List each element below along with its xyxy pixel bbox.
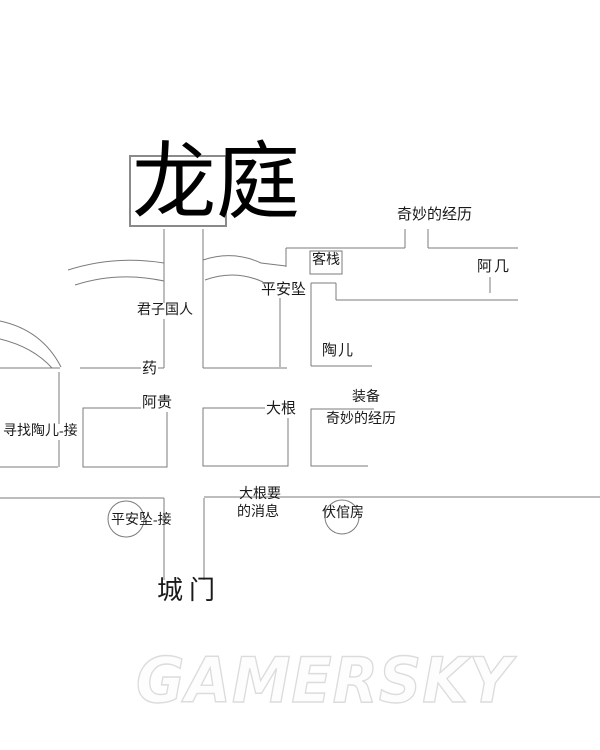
label-experience-top: 奇妙的经历 — [397, 207, 472, 224]
label-dagen-message-line1: 大根要 — [239, 487, 281, 503]
label-junzi-countryman: 君子国人 — [136, 303, 194, 319]
arc-road-left-upper — [68, 260, 164, 270]
map-line-art — [0, 0, 600, 750]
label-medicine: 药 — [141, 361, 158, 378]
label-city-gate: 城门 — [157, 576, 221, 606]
label-agui: 阿贵 — [141, 395, 173, 412]
game-map-longting: GAMERSKY — [0, 0, 600, 750]
arc-road-right-lower — [205, 275, 263, 282]
label-fuguan-room: 伏倌房 — [322, 506, 364, 522]
road-citygate-vertical — [164, 498, 204, 580]
label-quest-pingan: 平安坠-接 — [111, 513, 172, 529]
label-pingan-pendant: 平安坠 — [261, 282, 306, 299]
label-experience-mid: 奇妙的经历 — [326, 412, 396, 428]
arc-road-lowerleft-outer — [0, 321, 61, 367]
road-bottom-horizontal — [0, 497, 600, 498]
label-quest-find-taoer: 寻找陶儿-接 — [2, 424, 79, 440]
page-title: 龙庭 — [132, 136, 300, 233]
label-equipment: 装备 — [351, 390, 381, 406]
arc-road-right-upper — [203, 256, 286, 266]
label-dagen-message-line2: 的消息 — [237, 505, 279, 521]
label-inn: 客栈 — [312, 253, 340, 269]
block-inn-notch — [311, 283, 336, 300]
label-aji: 阿几 — [477, 259, 511, 276]
label-taoer: 陶儿 — [322, 343, 354, 360]
path-experience-entry — [405, 229, 428, 248]
label-dagen: 大根 — [265, 401, 297, 418]
block-agui — [83, 408, 167, 467]
arc-road-left-lower — [75, 277, 164, 285]
